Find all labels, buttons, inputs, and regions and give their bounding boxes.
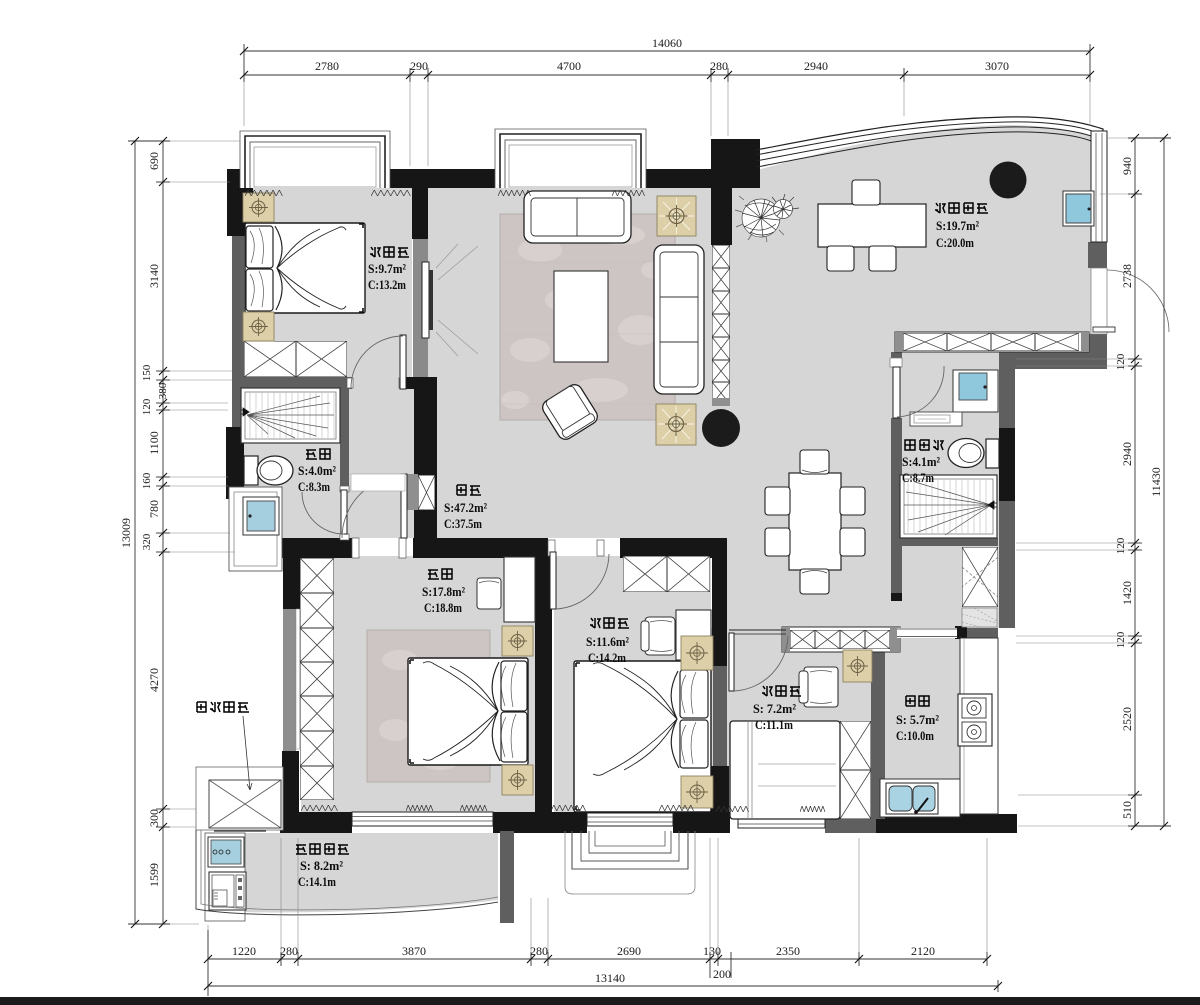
svg-text:C:10.0m: C:10.0m bbox=[896, 728, 934, 743]
svg-text:130: 130 bbox=[703, 944, 721, 958]
svg-text:2350: 2350 bbox=[776, 944, 800, 958]
svg-text:940: 940 bbox=[1120, 157, 1134, 175]
svg-text:280: 280 bbox=[530, 944, 548, 958]
svg-text:2940: 2940 bbox=[1120, 442, 1134, 466]
svg-text:C:8.7m: C:8.7m bbox=[902, 470, 934, 485]
svg-text:1420: 1420 bbox=[1120, 581, 1134, 605]
svg-text:320: 320 bbox=[141, 533, 153, 550]
svg-text:120: 120 bbox=[1115, 631, 1127, 648]
svg-text:300: 300 bbox=[147, 809, 161, 827]
svg-text:2120: 2120 bbox=[911, 944, 935, 958]
svg-text:2738: 2738 bbox=[1120, 264, 1134, 288]
svg-text:C:11.1m: C:11.1m bbox=[755, 717, 793, 732]
svg-text:14060: 14060 bbox=[652, 36, 682, 50]
svg-text:C:13.2m: C:13.2m bbox=[368, 277, 406, 292]
svg-text:380: 380 bbox=[157, 382, 169, 399]
svg-text:11430: 11430 bbox=[1149, 467, 1163, 497]
svg-text:160: 160 bbox=[141, 472, 153, 489]
svg-text:1100: 1100 bbox=[147, 431, 161, 455]
svg-text:120: 120 bbox=[141, 398, 153, 415]
svg-text:C:8.3m: C:8.3m bbox=[298, 479, 330, 494]
svg-text:2690: 2690 bbox=[617, 944, 641, 958]
svg-text:S: 5.7m²: S: 5.7m² bbox=[896, 712, 939, 727]
svg-text:2940: 2940 bbox=[804, 59, 828, 73]
svg-text:S: 8.2m²: S: 8.2m² bbox=[300, 858, 343, 873]
svg-text:S:4.0m²: S:4.0m² bbox=[298, 463, 336, 478]
svg-text:510: 510 bbox=[1120, 801, 1134, 819]
svg-text:13009: 13009 bbox=[119, 518, 133, 548]
svg-text:S:9.7m²: S:9.7m² bbox=[368, 261, 406, 276]
svg-text:S:4.1m²: S:4.1m² bbox=[902, 454, 940, 469]
svg-text:1599: 1599 bbox=[147, 863, 161, 887]
svg-text:290: 290 bbox=[410, 59, 428, 73]
svg-text:1220: 1220 bbox=[232, 944, 256, 958]
svg-text:C:20.0m: C:20.0m bbox=[936, 235, 974, 250]
svg-text:S:19.7m²: S:19.7m² bbox=[936, 218, 979, 233]
svg-text:S: 7.2m²: S: 7.2m² bbox=[753, 701, 796, 716]
svg-text:280: 280 bbox=[280, 944, 298, 958]
svg-text:S:47.2m²: S:47.2m² bbox=[444, 500, 487, 515]
svg-text:3870: 3870 bbox=[402, 944, 426, 958]
svg-text:280: 280 bbox=[710, 59, 728, 73]
svg-text:S:11.6m²: S:11.6m² bbox=[586, 634, 629, 649]
svg-text:690: 690 bbox=[147, 152, 161, 170]
svg-text:200: 200 bbox=[713, 967, 731, 981]
svg-text:2780: 2780 bbox=[315, 59, 339, 73]
svg-text:2520: 2520 bbox=[1120, 707, 1134, 731]
svg-text:C:14.2m: C:14.2m bbox=[588, 650, 626, 665]
svg-text:C:18.8m: C:18.8m bbox=[424, 600, 462, 615]
svg-text:S:17.8m²: S:17.8m² bbox=[422, 584, 465, 599]
svg-text:C:14.1m: C:14.1m bbox=[298, 874, 336, 889]
svg-text:780: 780 bbox=[147, 500, 161, 518]
svg-text:4270: 4270 bbox=[147, 668, 161, 692]
svg-text:3140: 3140 bbox=[147, 264, 161, 288]
svg-text:13140: 13140 bbox=[595, 971, 625, 985]
svg-text:C:37.5m: C:37.5m bbox=[444, 516, 482, 531]
svg-text:3070: 3070 bbox=[985, 59, 1009, 73]
svg-text:120: 120 bbox=[1115, 537, 1127, 554]
svg-text:120: 120 bbox=[1115, 353, 1127, 370]
svg-text:150: 150 bbox=[141, 364, 153, 381]
svg-text:4700: 4700 bbox=[557, 59, 581, 73]
